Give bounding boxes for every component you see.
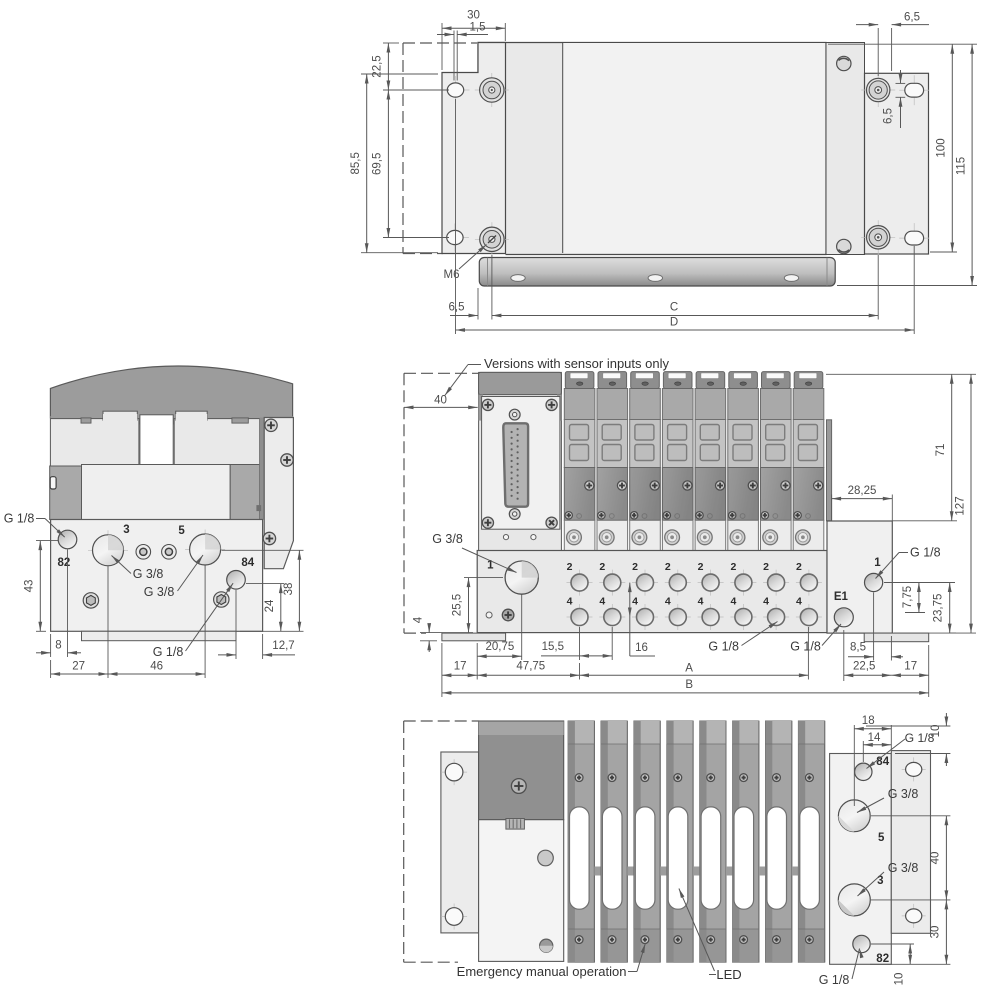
svg-text:2: 2 (730, 561, 736, 573)
svg-text:Versions with sensor inputs on: Versions with sensor inputs only (484, 356, 669, 371)
svg-text:15,5: 15,5 (542, 641, 564, 653)
svg-text:28,25: 28,25 (848, 485, 877, 497)
svg-text:2: 2 (796, 561, 802, 573)
svg-text:18: 18 (862, 715, 875, 727)
svg-text:38: 38 (283, 583, 295, 596)
svg-text:115: 115 (955, 157, 967, 175)
svg-text:17: 17 (454, 661, 467, 673)
svg-text:82: 82 (876, 953, 889, 965)
svg-text:4: 4 (730, 595, 736, 607)
svg-text:5: 5 (878, 832, 885, 844)
svg-text:84: 84 (241, 557, 254, 569)
svg-text:G 1/8: G 1/8 (708, 640, 739, 654)
svg-text:8: 8 (55, 640, 61, 652)
svg-text:85,5: 85,5 (350, 152, 362, 174)
svg-text:30: 30 (930, 926, 942, 939)
svg-text:22,5: 22,5 (853, 661, 875, 673)
svg-text:2: 2 (599, 561, 605, 573)
svg-text:G 3/8: G 3/8 (888, 787, 919, 801)
svg-text:4: 4 (796, 595, 802, 607)
svg-text:G 3/8: G 3/8 (888, 861, 919, 875)
svg-text:47,75: 47,75 (516, 661, 545, 673)
svg-text:D: D (670, 317, 678, 329)
svg-text:G 1/8: G 1/8 (910, 546, 941, 560)
svg-text:2: 2 (763, 561, 769, 573)
svg-text:27: 27 (72, 661, 85, 673)
svg-text:C: C (670, 302, 678, 314)
svg-text:16: 16 (635, 642, 648, 654)
svg-text:A: A (685, 663, 693, 675)
svg-text:1: 1 (874, 557, 881, 569)
svg-text:3: 3 (123, 524, 129, 536)
svg-text:G 1/8: G 1/8 (4, 512, 35, 526)
svg-text:14: 14 (868, 732, 881, 744)
svg-text:Emergency manual operation: Emergency manual operation (457, 964, 627, 979)
svg-text:71: 71 (935, 444, 947, 457)
svg-text:25,5: 25,5 (452, 594, 464, 616)
svg-text:23,75: 23,75 (933, 594, 945, 623)
svg-text:4: 4 (567, 595, 573, 607)
svg-text:17: 17 (904, 661, 917, 673)
svg-text:G 1/8: G 1/8 (819, 973, 850, 987)
svg-text:G 3/8: G 3/8 (432, 532, 463, 546)
svg-text:100: 100 (936, 138, 948, 157)
svg-text:G 1/8: G 1/8 (790, 640, 821, 654)
svg-text:84: 84 (876, 756, 889, 768)
svg-text:B: B (685, 679, 693, 691)
svg-text:4: 4 (632, 595, 638, 607)
svg-text:4: 4 (698, 595, 704, 607)
svg-text:30: 30 (467, 10, 480, 22)
svg-text:4: 4 (763, 595, 769, 607)
svg-text:10: 10 (894, 973, 906, 986)
svg-text:6,5: 6,5 (449, 302, 465, 314)
svg-text:4: 4 (599, 595, 605, 607)
svg-text:127: 127 (954, 496, 966, 515)
svg-text:G 3/8: G 3/8 (133, 567, 164, 581)
svg-text:G 1/8: G 1/8 (153, 645, 184, 659)
svg-text:E1: E1 (834, 591, 849, 603)
svg-text:2: 2 (632, 561, 638, 573)
svg-text:7,75: 7,75 (902, 586, 914, 608)
svg-text:20,75: 20,75 (486, 641, 515, 653)
svg-text:4: 4 (665, 595, 671, 607)
svg-text:6,5: 6,5 (883, 108, 895, 124)
svg-text:1,5: 1,5 (470, 22, 486, 34)
svg-text:43: 43 (24, 580, 36, 593)
svg-text:6,5: 6,5 (904, 12, 920, 24)
svg-text:2: 2 (698, 561, 704, 573)
svg-text:69,5: 69,5 (372, 153, 384, 175)
svg-text:46: 46 (150, 661, 163, 673)
svg-text:12,7: 12,7 (272, 640, 294, 652)
svg-text:82: 82 (58, 557, 71, 569)
svg-text:4: 4 (413, 616, 425, 623)
svg-text:10: 10 (930, 725, 942, 738)
svg-text:2: 2 (665, 561, 671, 573)
svg-text:LED: LED (716, 967, 741, 982)
svg-text:24: 24 (264, 599, 276, 612)
svg-text:40: 40 (930, 852, 942, 865)
svg-text:G 3/8: G 3/8 (144, 585, 175, 599)
svg-text:40: 40 (434, 395, 447, 407)
svg-text:2: 2 (567, 561, 573, 573)
svg-text:8,5: 8,5 (850, 642, 866, 654)
svg-text:M6: M6 (444, 269, 460, 281)
svg-text:5: 5 (178, 525, 185, 537)
